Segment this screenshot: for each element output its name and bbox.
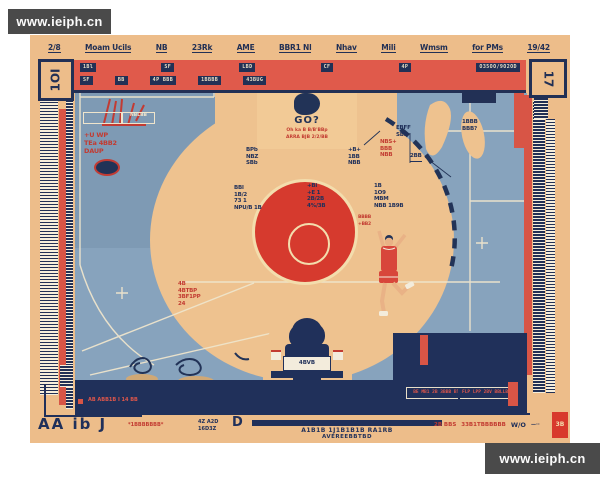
bottom-mini-1: 4Z A2D [198, 419, 218, 425]
alcove-item-left [271, 350, 281, 360]
annotation-circle-left: BBl1B/273 1NPU/B 1B [234, 185, 262, 211]
bottom-corner-red-box: 3B [552, 412, 568, 438]
poster-headline-row: 2/8Moam UcilsNB23RkAMEBBR1 NlNhavMiliWms… [48, 37, 550, 53]
annotation-arc-2: 2BB [410, 153, 422, 162]
annotation-player: BBBB+BB2 [358, 215, 371, 228]
right-ruler-top-chip [534, 97, 548, 119]
scoreboard-header-bar: 1BlSFLBDCF4PO35OO/9O2OD SFBB4P BBB1BBBB4… [74, 60, 526, 93]
bottom-mini-2: 16D3Z [198, 426, 216, 432]
desk [271, 371, 343, 378]
badge-title: GO? [257, 116, 357, 126]
basketball-icon [294, 93, 320, 115]
badge-subtext-1: Oh ka B B/B'BBp [257, 128, 357, 134]
left-ruler-bottom-chip [60, 365, 73, 387]
bottom-right-2: 33B1TBBBBBB [461, 422, 506, 428]
bottom-right-1: 2B BBS [434, 422, 456, 428]
corner-box-top-left: 1OI [38, 59, 74, 101]
inner-circle-outline [288, 223, 330, 265]
annotation-key-red: NBS+BBBNBB [380, 139, 397, 159]
white-outline-box-label: NBLBB [122, 112, 155, 124]
scoreboard-row-1: 1BlSFLBDCF4PO35OO/9O2OD [80, 63, 520, 72]
bottom-big-mark: AA ib J [38, 417, 107, 432]
eye-oval-marker [94, 159, 120, 176]
bottom-divider-bar [252, 420, 442, 426]
bottom-ring-glyph: D [232, 416, 243, 429]
corner-box-top-right: 17 [529, 59, 567, 98]
scoreboard-row-2: SFBB4P BBB1BBBB43BUG [80, 76, 520, 85]
bottom-right-cluster: 2B BBS 33B1TBBBBBB W/O —·· [434, 422, 540, 428]
navy-block-red-accent [420, 335, 428, 365]
sketch-doodles [130, 353, 249, 375]
annotation-arc: EBFFSBB [396, 125, 411, 138]
white-outline-box [83, 112, 122, 124]
right-red-accent [514, 93, 524, 148]
corner-box-top-left-label: 1OI [50, 68, 62, 91]
annotation-blob: 1BBBBBB? [462, 119, 478, 132]
bottom-subtitle-line: AVEREEBBTBD [252, 435, 442, 441]
bottom-right-3: W/O [511, 422, 526, 428]
corner-box-top-right-label: 17 [542, 70, 554, 87]
bracket-bottom-left [44, 385, 142, 417]
annotation-key-left: BPbNBZSBb [246, 147, 258, 167]
annotation-lower-red: 4B4BTBP3BF1PP24 [178, 281, 200, 307]
right-ruler-navy-strip [533, 101, 545, 393]
watermark-top-left: www.ieiph.cn [8, 9, 111, 34]
alcove-item-right [333, 350, 343, 360]
basketball-player-figure [379, 231, 415, 316]
watermark-bottom-right: www.ieiph.cn [485, 443, 600, 474]
bracket-bottom-right [458, 389, 530, 415]
left-ruler-red-bar [59, 109, 66, 405]
header-navy-chip [462, 93, 496, 103]
left-ruler-navy-strip [66, 99, 73, 409]
annotation-circle-mid: +Bi+E 12B/2B4%/3B [307, 183, 325, 209]
poster-illustration: 1BBB2 GO? Oh ka B B/B'BBp ARRA BJB 2/2/B… [30, 35, 570, 443]
right-ruler-ticks [546, 119, 555, 393]
page: { "watermark_top_left": "www.ieiph.cn", … [0, 0, 600, 480]
bottom-left-red: *1BBBBBBB* [128, 422, 163, 428]
center-badge-box: 1BBB2 GO? Oh ka B B/B'BBp ARRA BJB 2/2/B… [257, 85, 357, 149]
annotation-key-right: +B+1BBNBB [348, 147, 361, 167]
annotation-scribble-red: +U WPTEa 4BB2DAUP [84, 131, 117, 155]
badge-subtext-2: ARRA BJB 2/2/BB [257, 135, 357, 141]
left-ruler-ticks [40, 99, 58, 395]
scorer-panel: 4BVB [283, 356, 331, 371]
annotation-circle-right: 1B1O9MBMNBB 1B9B [374, 183, 403, 209]
bottom-right-dots: —·· [531, 422, 540, 428]
